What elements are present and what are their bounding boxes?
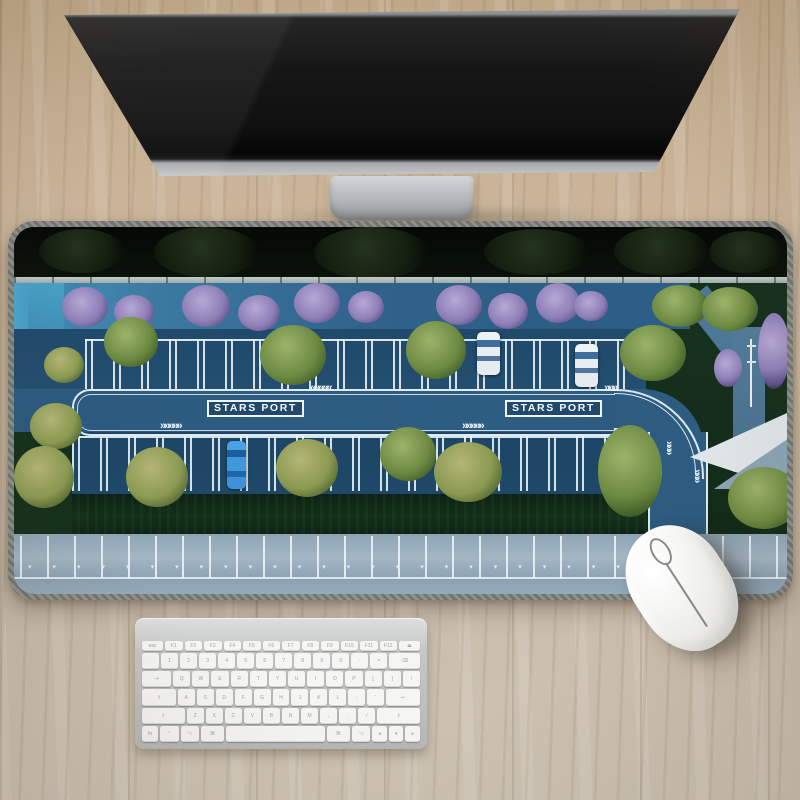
keyboard-row: fn⌃⌥⌘⌘⌥◂▾▸ [142, 726, 420, 742]
key-D[interactable]: D [216, 689, 233, 705]
key-F5[interactable]: F5 [243, 641, 261, 651]
tree-purple [436, 285, 482, 325]
key-F2[interactable]: F2 [185, 641, 203, 651]
key-F[interactable]: F [235, 689, 252, 705]
tree-olive [14, 446, 74, 508]
key-space[interactable] [226, 726, 324, 742]
chevrons-right: »»»»» [160, 421, 181, 432]
chevrons-down: »»» [691, 469, 702, 481]
key-F11[interactable]: F11 [360, 641, 378, 651]
key-A[interactable]: A [178, 689, 195, 705]
key-K[interactable]: K [310, 689, 327, 705]
key-⇪[interactable]: ⇪ [142, 689, 176, 705]
mouse-scroll-wheel[interactable] [645, 534, 676, 569]
key-N[interactable]: N [282, 708, 299, 724]
key-W[interactable]: W [192, 671, 209, 687]
tree-green [652, 285, 708, 327]
key-▾[interactable]: ▾ [389, 726, 404, 742]
tree-purple [62, 287, 108, 327]
car-blue [227, 441, 246, 489]
key-Y[interactable]: Y [269, 671, 286, 687]
key-8[interactable]: 8 [294, 653, 311, 669]
tree-green [702, 287, 758, 331]
key-⏏[interactable]: ⏏ [399, 641, 420, 651]
key-B[interactable]: B [263, 708, 280, 724]
chevrons-left: ««««« [310, 383, 331, 394]
tree-green [598, 425, 662, 517]
key-F7[interactable]: F7 [282, 641, 300, 651]
key-⌥[interactable]: ⌥ [181, 726, 199, 742]
keyboard-row: ⇪ASDFGHJKL;'↩ [142, 689, 420, 705]
tree-olive [276, 439, 338, 497]
dark-tree [614, 227, 709, 275]
key-▸[interactable]: ▸ [405, 726, 420, 742]
monitor-stand [330, 176, 474, 220]
key-6[interactable]: 6 [256, 653, 273, 669]
key-F10[interactable]: F10 [341, 641, 359, 651]
key-P[interactable]: P [345, 671, 362, 687]
key-F4[interactable]: F4 [224, 641, 242, 651]
key-S[interactable]: S [197, 689, 214, 705]
key-.[interactable]: . [339, 708, 356, 724]
key-3[interactable]: 3 [199, 653, 216, 669]
keyboard-row: ⇥QWERTYUIOP[]\ [142, 671, 420, 687]
dark-tree [39, 229, 124, 273]
tree-purple [294, 283, 340, 323]
key-esc[interactable]: esc [142, 641, 163, 651]
lamp-post [750, 339, 752, 407]
tree-purple [488, 293, 528, 329]
keyboard[interactable]: escF1F2F3F4F5F6F7F8F9F10F11F12⏏`12345678… [135, 618, 427, 749]
tree-green [260, 325, 326, 385]
keyboard-row: escF1F2F3F4F5F6F7F8F9F10F11F12⏏ [142, 641, 420, 651]
key-/[interactable]: / [358, 708, 375, 724]
dark-tree [484, 229, 589, 275]
dark-tree [314, 227, 429, 279]
key-↩[interactable]: ↩ [386, 689, 420, 705]
key-O[interactable]: O [326, 671, 343, 687]
key-][interactable]: ] [384, 671, 401, 687]
key--[interactable]: - [351, 653, 368, 669]
key-⇧[interactable]: ⇧ [142, 708, 185, 724]
key-Z[interactable]: Z [187, 708, 204, 724]
key-⌫[interactable]: ⌫ [389, 653, 420, 669]
key-[[interactable]: [ [365, 671, 382, 687]
key-I[interactable]: I [307, 671, 324, 687]
tree-green [406, 321, 466, 379]
key-;[interactable]: ; [348, 689, 365, 705]
key-fn[interactable]: fn [142, 726, 158, 742]
key-U[interactable]: U [288, 671, 305, 687]
key-L[interactable]: L [329, 689, 346, 705]
tree-green [380, 427, 436, 481]
car-white-2 [575, 344, 598, 387]
monitor [58, 6, 744, 222]
top-parking-markings [85, 339, 641, 389]
key-T[interactable]: T [250, 671, 267, 687]
key-Q[interactable]: Q [173, 671, 190, 687]
key-⇧[interactable]: ⇧ [377, 708, 420, 724]
key-X[interactable]: X [206, 708, 223, 724]
tree-green [620, 325, 686, 381]
key-M[interactable]: M [301, 708, 318, 724]
key-E[interactable]: E [211, 671, 228, 687]
key-1[interactable]: 1 [161, 653, 178, 669]
key-5[interactable]: 5 [237, 653, 254, 669]
stars-port-sign-left: STARS PORT [207, 400, 304, 417]
key-⇥[interactable]: ⇥ [142, 671, 171, 687]
key-J[interactable]: J [291, 689, 308, 705]
dark-tree [709, 231, 781, 273]
keyboard-keys: escF1F2F3F4F5F6F7F8F9F10F11F12⏏`12345678… [142, 641, 420, 742]
key-F6[interactable]: F6 [263, 641, 281, 651]
key-9[interactable]: 9 [313, 653, 330, 669]
key-F9[interactable]: F9 [321, 641, 339, 651]
key-2[interactable]: 2 [180, 653, 197, 669]
mouse-seam [665, 562, 708, 627]
key-0[interactable]: 0 [332, 653, 349, 669]
tree-purple [348, 291, 384, 323]
key-G[interactable]: G [254, 689, 271, 705]
key-7[interactable]: 7 [275, 653, 292, 669]
tree-olive [44, 347, 84, 383]
key-R[interactable]: R [231, 671, 248, 687]
chevrons-down: »»» [663, 441, 674, 453]
tree-purple [714, 349, 742, 387]
chevrons-right-short: »»» [604, 383, 616, 394]
dark-tree [154, 227, 259, 277]
key-F8[interactable]: F8 [302, 641, 320, 651]
key-⌃[interactable]: ⌃ [160, 726, 178, 742]
tree-green [104, 317, 158, 367]
key-=[interactable]: = [370, 653, 387, 669]
key-F3[interactable]: F3 [204, 641, 222, 651]
keyboard-row: `1234567890-=⌫ [142, 653, 420, 669]
key-`[interactable]: ` [142, 653, 159, 669]
chevrons-right: »»»»» [462, 421, 483, 432]
tree-olive [126, 447, 188, 507]
tree-olive [30, 403, 82, 449]
stars-port-sign-right: STARS PORT [505, 400, 602, 417]
lamp-arm [747, 361, 756, 363]
key-F12[interactable]: F12 [380, 641, 398, 651]
key-⌥[interactable]: ⌥ [352, 726, 370, 742]
key-◂[interactable]: ◂ [372, 726, 387, 742]
key-,[interactable]: , [320, 708, 337, 724]
lamp-arm [747, 345, 756, 347]
tree-purple [574, 291, 608, 321]
key-\[interactable]: \ [403, 671, 420, 687]
key-V[interactable]: V [244, 708, 261, 724]
key-'[interactable]: ' [367, 689, 384, 705]
keyboard-row: ⇧ZXCVBNM,./⇧ [142, 708, 420, 724]
desk-photo: { "scene_title": "Desk setup with STARS … [0, 0, 800, 800]
tree-purple [758, 313, 787, 389]
key-H[interactable]: H [273, 689, 290, 705]
tree-olive [434, 442, 502, 502]
key-4[interactable]: 4 [218, 653, 235, 669]
key-F1[interactable]: F1 [165, 641, 183, 651]
key-⌘[interactable]: ⌘ [201, 726, 225, 742]
tree-purple [182, 285, 230, 327]
key-C[interactable]: C [225, 708, 242, 724]
key-⌘[interactable]: ⌘ [327, 726, 351, 742]
tree-purple [238, 295, 280, 331]
car-white-1 [477, 332, 500, 375]
